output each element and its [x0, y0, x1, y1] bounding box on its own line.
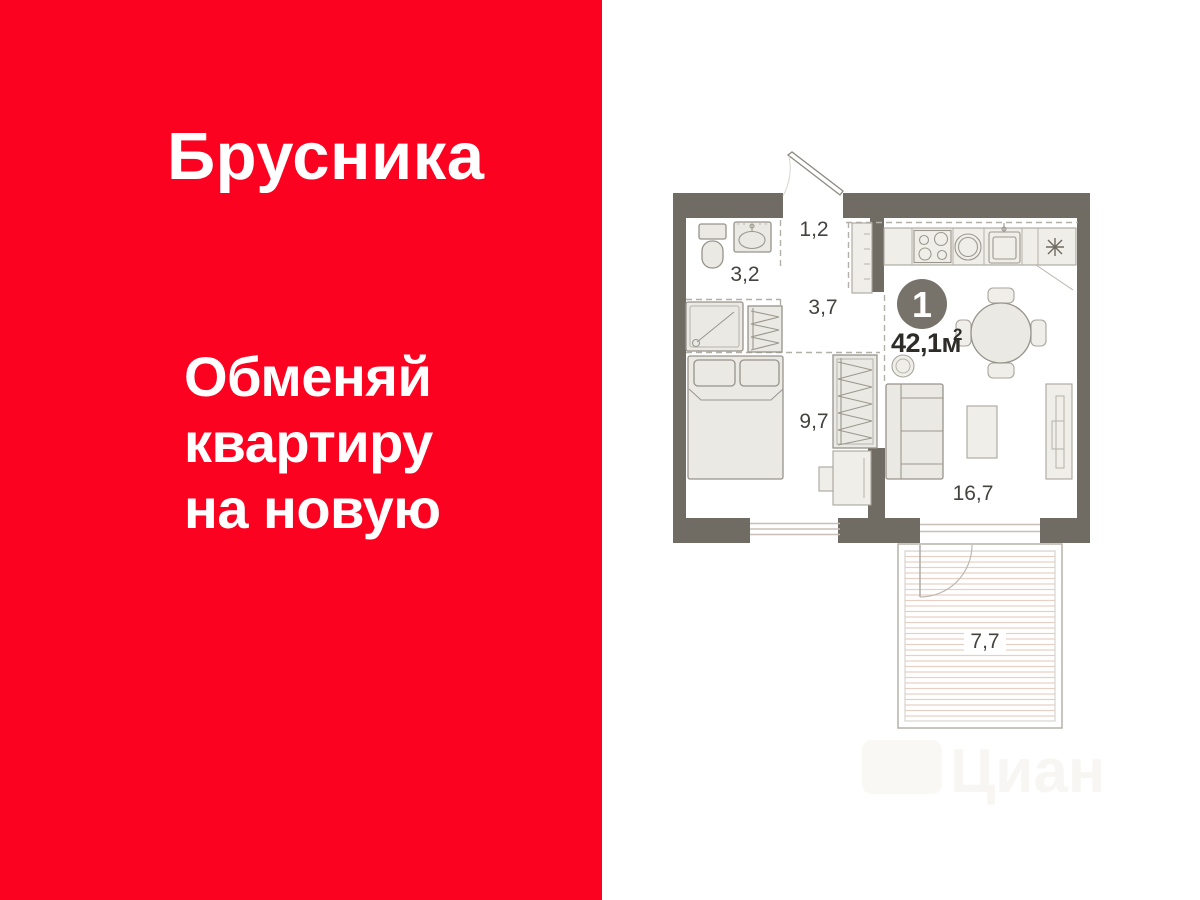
counter-corner-cut [1036, 265, 1073, 290]
pillow [694, 360, 735, 386]
dining-table [956, 288, 1046, 378]
stool [892, 355, 914, 377]
area-label-entry-hall: 1,2 [799, 218, 828, 241]
balcony-door-threshold [920, 525, 1040, 532]
area-label-bedroom: 9,7 [799, 410, 828, 433]
chair [988, 363, 1014, 378]
slogan-line-1: Обменяй [184, 344, 441, 410]
watermark: Циан [862, 737, 1105, 806]
pillow [740, 360, 779, 386]
total-area-value: 42,1м [891, 328, 961, 358]
chair [1031, 320, 1046, 346]
kitchen-counter [884, 223, 1076, 290]
hall-cabinet [852, 223, 872, 293]
rooms-count: 1 [912, 284, 932, 325]
area-label-living-room: 16,7 [953, 482, 994, 505]
total-area: 42,1м 2 [891, 325, 962, 358]
slogan: Обменяй квартиру на новую [184, 344, 441, 542]
total-area-sup: 2 [953, 325, 962, 344]
toilet [699, 224, 726, 268]
area-label-corridor: 3,7 [808, 296, 837, 319]
bedroom-cabinet [819, 451, 871, 505]
floorplan: 1,2 3,2 3,7 9,7 16,7 7,7 1 42,1м 2 Циан [602, 0, 1200, 900]
bed [688, 356, 783, 479]
fridge-snowflake-icon [1046, 238, 1064, 256]
shower [686, 302, 743, 351]
coffee-table [967, 406, 997, 458]
sofa [886, 384, 943, 479]
brand-panel: Брусника Обменяй квартиру на новую [0, 0, 602, 900]
watermark-text: Циан [950, 737, 1105, 806]
side-table [819, 467, 833, 491]
small-closet-hangers [748, 306, 782, 352]
promo-banner: Брусника Обменяй квартиру на новую [0, 0, 1200, 900]
tv-unit [1046, 384, 1072, 479]
area-label-balcony: 7,7 [970, 630, 999, 653]
area-label-bathroom: 3,2 [730, 263, 759, 286]
slogan-line-2: квартиру [184, 410, 441, 476]
bedroom-window [750, 524, 840, 535]
entry-door [783, 152, 843, 196]
rooms-badge: 1 [897, 279, 947, 329]
wardrobe-hangers [833, 355, 877, 448]
bathroom-sink [734, 222, 771, 252]
slogan-line-3: на новую [184, 476, 441, 542]
chair [988, 288, 1014, 303]
brand-logo: Брусника [167, 118, 485, 195]
